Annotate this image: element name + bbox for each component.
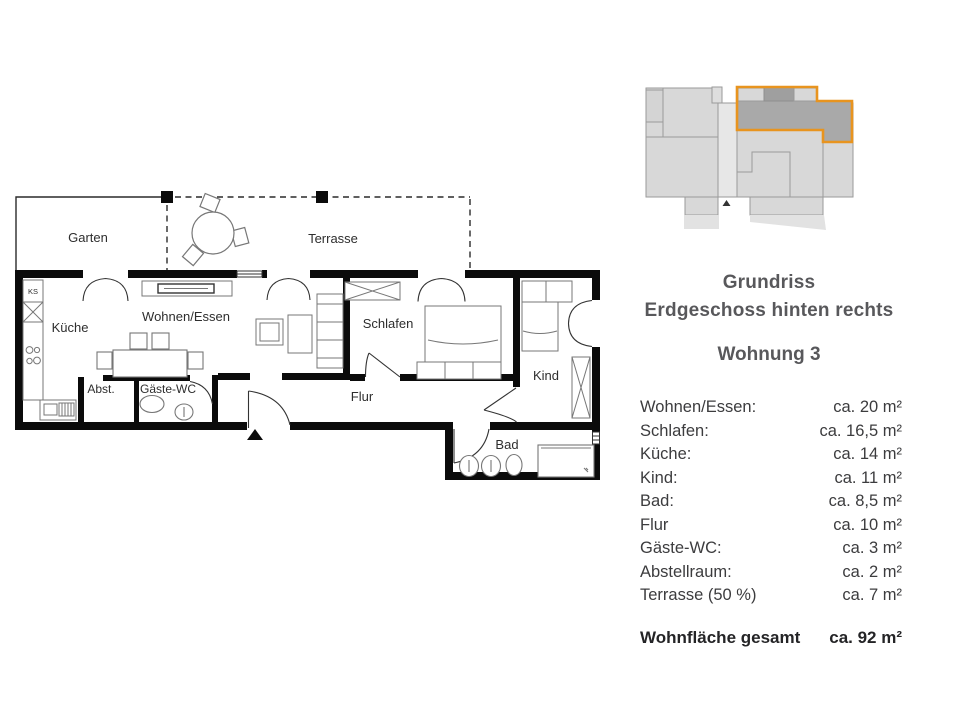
room-name: Gäste-WC:	[640, 537, 722, 561]
room-area-list: Wohnen/Essen: ca. 20 m² Schlafen: ca. 16…	[640, 396, 902, 608]
total-living-area: Wohnfläche gesamt ca. 92 m²	[640, 628, 902, 648]
kids-room-furniture	[522, 281, 590, 418]
room-name: Bad:	[640, 490, 674, 514]
entrance-arrow	[247, 429, 263, 440]
list-item: Kind: ca. 11 m²	[640, 467, 902, 491]
label-wohnen-essen: Wohnen/Essen	[142, 309, 230, 324]
minimap-entrance-arrow	[723, 200, 731, 206]
floor-plan: Garten Terrasse Küche Wohnen/Essen Schla…	[0, 185, 620, 490]
label-terrasse: Terrasse	[308, 231, 358, 246]
terrace-table-and-chairs	[182, 194, 248, 266]
list-item: Küche: ca. 14 m²	[640, 443, 902, 467]
room-area: ca. 11 m²	[834, 467, 902, 491]
room-name: Flur	[640, 514, 668, 538]
dining-table-set	[97, 333, 203, 377]
label-kueche: Küche	[52, 320, 89, 335]
site-plan-minimap	[638, 80, 863, 232]
room-name: Schlafen:	[640, 420, 709, 444]
room-area: ca. 2 m²	[842, 561, 902, 585]
title-line1: Grundriss	[620, 269, 918, 297]
room-area: ca. 3 m²	[842, 537, 902, 561]
room-name: Abstellraum:	[640, 561, 732, 585]
room-area: ca. 8,5 m²	[829, 490, 902, 514]
label-garten: Garten	[68, 230, 108, 245]
room-area: ca. 16,5 m²	[819, 420, 902, 444]
total-label: Wohnfläche gesamt	[640, 628, 800, 648]
label-ks: KS	[28, 287, 38, 296]
list-item: Abstellraum: ca. 2 m²	[640, 561, 902, 585]
label-flur: Flur	[351, 389, 374, 404]
kitchen-fixtures	[23, 280, 76, 420]
room-name: Küche:	[640, 443, 691, 467]
list-item: Bad: ca. 8,5 m²	[640, 490, 902, 514]
label-gaeste-wc: Gäste-WC	[140, 382, 196, 396]
apartment-number: Wohnung 3	[620, 344, 918, 366]
label-bad: Bad	[495, 437, 518, 452]
label-abst: Abst.	[87, 382, 114, 396]
room-area: ca. 7 m²	[842, 584, 902, 608]
list-item: Schlafen: ca. 16,5 m²	[640, 420, 902, 444]
guest-wc-fixtures	[140, 396, 193, 421]
room-name: Wohnen/Essen:	[640, 396, 756, 420]
list-item: Terrasse (50 %) ca. 7 m²	[640, 584, 902, 608]
list-item: Wohnen/Essen: ca. 20 m²	[640, 396, 902, 420]
page-title: Grundriss Erdgeschoss hinten rechts	[620, 269, 918, 325]
room-area: ca. 20 m²	[833, 396, 902, 420]
total-value: ca. 92 m²	[829, 628, 902, 648]
list-item: Gäste-WC: ca. 3 m²	[640, 537, 902, 561]
room-area: ca. 10 m²	[833, 514, 902, 538]
room-name: Terrasse (50 %)	[640, 584, 756, 608]
room-name: Kind:	[640, 467, 678, 491]
room-area: ca. 14 m²	[833, 443, 902, 467]
list-item: Flur ca. 10 m²	[640, 514, 902, 538]
title-line2: Erdgeschoss hinten rechts	[620, 297, 918, 325]
label-kind: Kind	[533, 368, 559, 383]
label-schlafen: Schlafen	[363, 316, 414, 331]
